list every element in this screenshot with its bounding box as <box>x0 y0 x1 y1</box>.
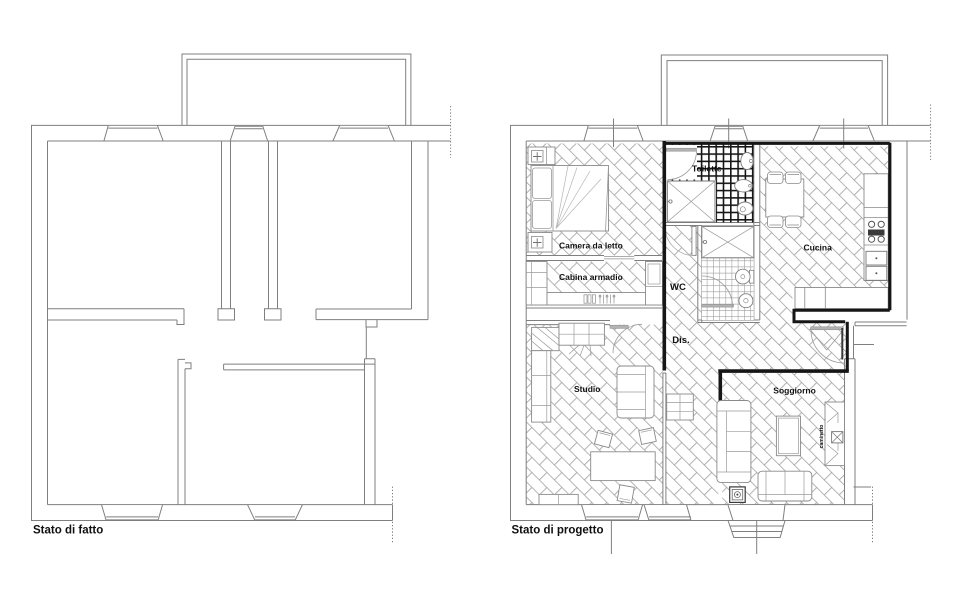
svg-text:WC: WC <box>670 282 686 293</box>
svg-text:Dis.: Dis. <box>672 335 689 346</box>
svg-text:Toilette: Toilette <box>692 163 722 173</box>
svg-text:Stato di progetto: Stato di progetto <box>512 525 604 537</box>
svg-text:Cabina armadio: Cabina armadio <box>559 272 623 282</box>
svg-text:Cucina: Cucina <box>804 242 833 252</box>
svg-text:Stato di fatto: Stato di fatto <box>33 525 103 537</box>
svg-text:Soggiorno: Soggiorno <box>773 386 816 396</box>
svg-text:caminetto: caminetto <box>819 425 825 449</box>
svg-text:Studio: Studio <box>574 384 600 394</box>
svg-text:Camera da letto: Camera da letto <box>559 241 623 251</box>
